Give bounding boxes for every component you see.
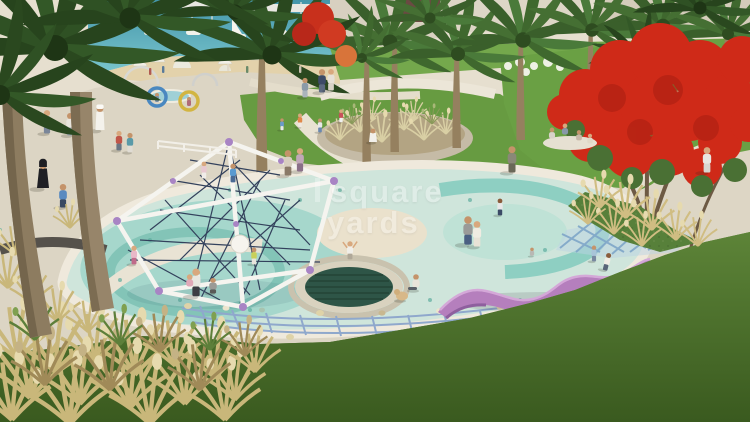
child-climbing [230, 164, 236, 183]
watermark-line1: square [330, 176, 444, 207]
park-render: square yards [0, 0, 750, 422]
pad-teal-circle [443, 204, 567, 260]
child-climbing [201, 162, 206, 179]
play-ball [231, 235, 249, 253]
watermark-logo-mark [315, 178, 320, 202]
watermark-line2: yards [327, 207, 420, 238]
